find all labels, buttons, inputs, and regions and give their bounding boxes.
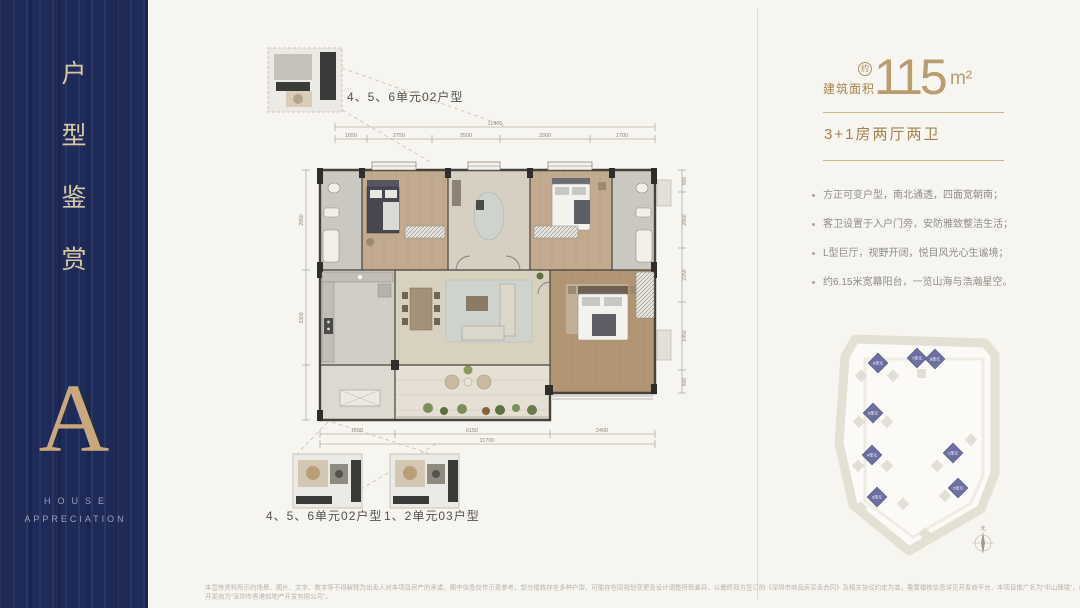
area-label: 建筑面积	[823, 80, 875, 97]
feature-text: L型巨厅，视野开阔，悦目风光心生谧境；	[823, 248, 1009, 259]
svg-text:北: 北	[980, 525, 985, 532]
disclaimer-line-2: 开发商为“深圳市香港信地产开发有限公司”。	[205, 592, 332, 601]
thumbnail-plan-bottom-right	[390, 454, 459, 508]
svg-text:4单元: 4单元	[867, 452, 877, 458]
svg-text:600: 600	[682, 378, 688, 387]
svg-text:3300: 3300	[299, 312, 305, 323]
svg-text:6单元: 6单元	[873, 360, 883, 366]
panel-divider	[757, 8, 758, 600]
site-map: 6单元 7单元 8单元 5单元 4单元 3单元 1单元 2单元	[825, 325, 1020, 575]
svg-text:7单元: 7单元	[912, 355, 922, 361]
feature-text: 方正可变户型，南北通透，四面宽朝南；	[823, 190, 1003, 201]
approx-badge: 约	[858, 62, 872, 76]
dimension-lines-left	[302, 170, 310, 420]
svg-text:5单元: 5单元	[868, 410, 878, 416]
svg-text:1650: 1650	[351, 428, 363, 434]
gold-rule-top	[823, 112, 1004, 113]
svg-text:2500: 2500	[460, 133, 472, 139]
sidebar: 户 型 鉴 赏 A HOUSE APPRECIATION	[0, 0, 148, 608]
bullet-dot-icon	[812, 281, 815, 284]
caption-top-units: 4、5、6单元02户型	[347, 88, 463, 105]
svg-text:900: 900	[682, 177, 688, 186]
svg-text:1650: 1650	[345, 133, 357, 139]
dimension-labels-left: 2850 3300	[299, 214, 305, 323]
svg-text:11700: 11700	[480, 438, 495, 444]
thumbnail-plan-bottom-left	[293, 454, 362, 508]
layout-type: 3+1房两厅两卫	[824, 123, 940, 144]
disclaimer-line-1: 本宣传资料所示的场景、图片、文字、数字等不得解释为出卖人对本项目房产的承诺，图中…	[205, 583, 1080, 592]
feature-item: L型巨厅，视野开阔，悦目风光心生谧境；	[812, 248, 1017, 259]
svg-text:1450: 1450	[682, 330, 688, 341]
compass-icon: 北	[972, 525, 994, 554]
plan-type-letter: A	[0, 370, 148, 468]
svg-text:2850: 2850	[299, 214, 305, 225]
bullet-dot-icon	[812, 252, 815, 255]
title-char: 型	[61, 116, 86, 152]
area-unit: m²	[950, 68, 972, 90]
floor-plan	[317, 162, 671, 421]
area-value: 115	[874, 48, 945, 106]
svg-text:3300: 3300	[539, 133, 551, 139]
feature-text: 约6.15米宽幕阳台，一览山海与浩瀚星空。	[823, 277, 1012, 288]
dimension-labels-right: 900 2850 2250 1450 600	[682, 177, 688, 387]
bullet-dot-icon	[812, 194, 815, 197]
bullet-dot-icon	[812, 223, 815, 226]
svg-text:1700: 1700	[616, 133, 628, 139]
feature-item: 约6.15米宽幕阳台，一览山海与浩瀚星空。	[812, 277, 1017, 288]
page-title: 户 型 鉴 赏	[0, 54, 148, 276]
sidebar-subtitle-appreciation: APPRECIATION	[0, 514, 148, 524]
sidebar-subtitle-house: HOUSE	[0, 496, 148, 506]
feature-list: 方正可变户型，南北通透，四面宽朝南； 客卫设置于入户门旁，安防雅致整洁生活； L…	[812, 190, 1017, 306]
svg-text:8单元: 8单元	[930, 356, 940, 362]
svg-text:2400: 2400	[596, 428, 608, 434]
brochure-page: 户 型 鉴 赏 A HOUSE APPRECIATION	[0, 0, 1080, 608]
floor-plan-canvas: 11900 1650 2750 2500 3300 1700 2850 3300…	[200, 30, 760, 570]
thumbnail-plan-top	[268, 48, 342, 112]
svg-text:11900: 11900	[488, 121, 503, 127]
feature-item: 方正可变户型，南北通透，四面宽朝南；	[812, 190, 1017, 201]
svg-text:6150: 6150	[466, 428, 478, 434]
caption-bottom-left-units: 4、5、6单元02户型	[266, 507, 382, 524]
svg-text:3单元: 3单元	[872, 494, 882, 500]
feature-item: 客卫设置于入户门旁，安防雅致整洁生活；	[812, 219, 1017, 230]
title-char: 鉴	[61, 178, 86, 214]
title-char: 赏	[61, 240, 86, 276]
gold-rule-bottom	[823, 160, 1004, 161]
title-char: 户	[61, 54, 86, 90]
balcony	[395, 365, 550, 420]
svg-text:2850: 2850	[682, 214, 688, 225]
svg-text:2250: 2250	[682, 269, 688, 280]
caption-bottom-right-units: 1、2单元03户型	[384, 507, 480, 524]
feature-text: 客卫设置于入户门旁，安防雅致整洁生活；	[823, 219, 1013, 230]
svg-text:1单元: 1单元	[948, 450, 958, 456]
svg-text:2750: 2750	[393, 133, 405, 139]
dimension-labels-bottom: 1650 6150 2400 11700	[351, 428, 608, 444]
svg-text:2单元: 2单元	[953, 485, 963, 491]
